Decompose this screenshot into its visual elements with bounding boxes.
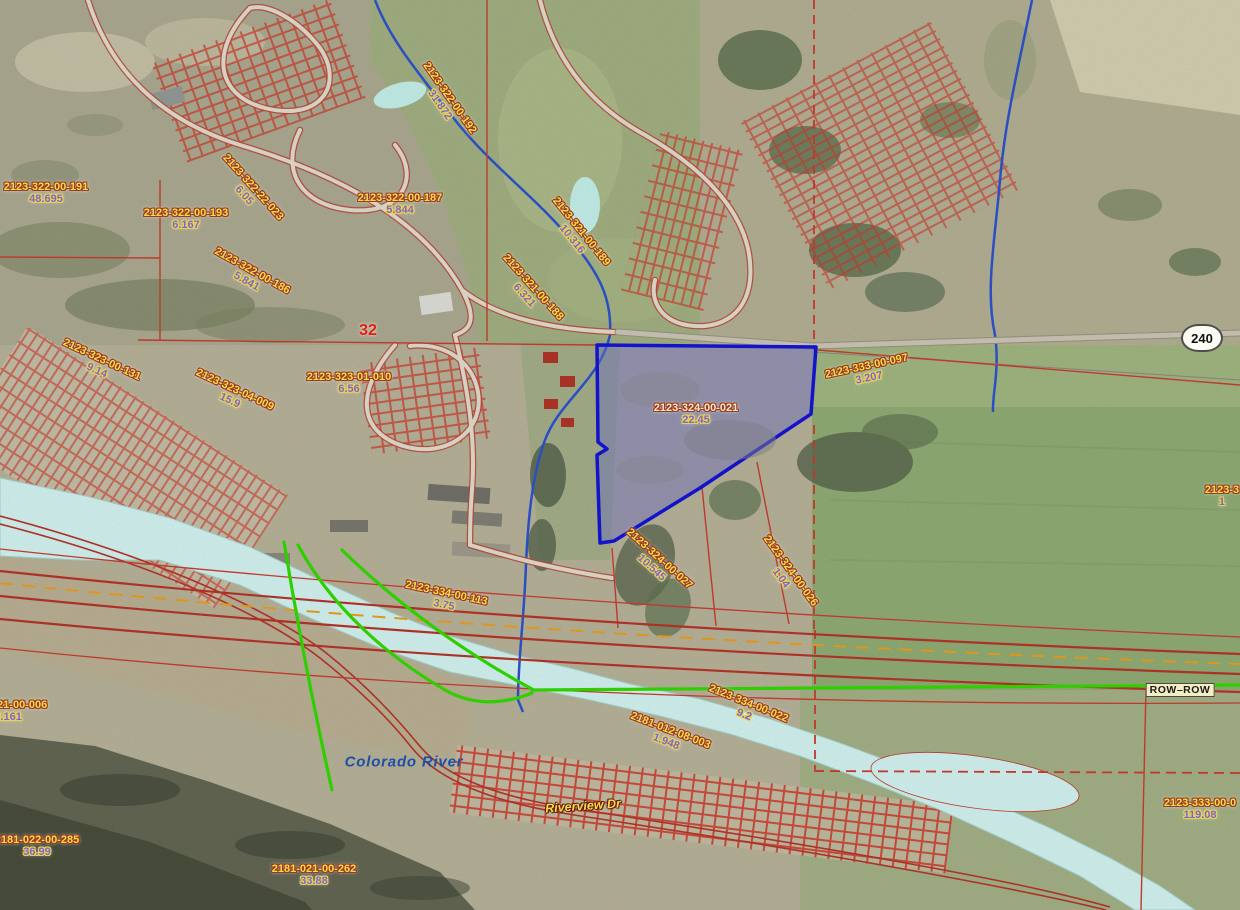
parcel-map-viewport[interactable]: 2123-322-00-19148.6952123-322-00-1936.16… [0,0,1240,910]
aerial-grain [0,0,1240,910]
colorado-river-label: Colorado River [345,754,464,771]
row-right-of-way-label: ROW–ROW [1146,683,1215,697]
map-canvas [0,0,1240,910]
route-240-shield: 240 [1181,324,1223,352]
section-number-label: 32 [359,322,377,340]
